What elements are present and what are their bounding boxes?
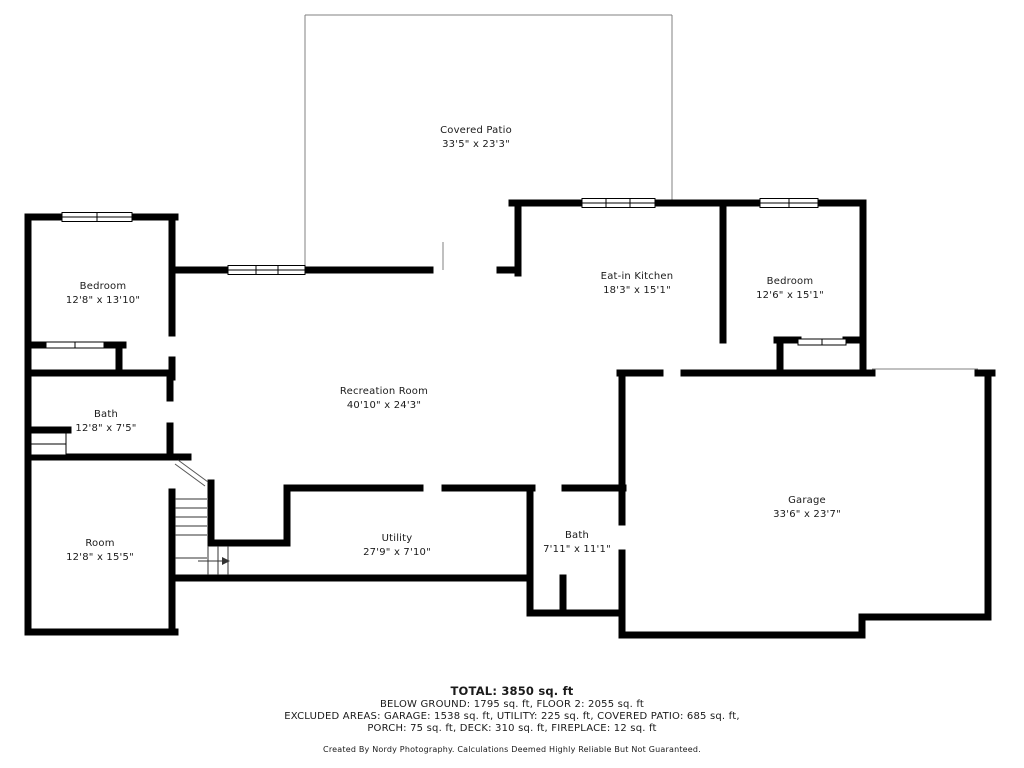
door-leaf-line	[178, 460, 208, 482]
window-bedroom-right	[760, 199, 818, 208]
room-dims: 27'9" x 7'10"	[363, 547, 431, 558]
utility-stair-walls	[172, 483, 623, 578]
room-name: Garage	[788, 495, 826, 506]
floorplan-drawing: Covered Patio 33'5" x 23'3" Bedroom 12'8…	[0, 0, 1024, 768]
summary-line3: EXCLUDED AREAS: GARAGE: 1538 sq. ft, UTI…	[284, 711, 739, 722]
room-dims: 12'6" x 15'1"	[756, 290, 824, 301]
room-label-bedroom-left: Bedroom 12'8" x 13'10"	[66, 281, 140, 306]
stairs	[175, 499, 230, 575]
window-kitchen	[582, 199, 655, 208]
room-label-bath-left: Bath 12'8" x 7'5"	[75, 409, 136, 434]
room-name: Utility	[382, 533, 413, 544]
room-label-room: Room 12'8" x 15'5"	[66, 538, 134, 563]
summary-line4: PORCH: 75 sq. ft, DECK: 310 sq. ft, FIRE…	[367, 723, 656, 734]
room-name: Eat-in Kitchen	[601, 271, 674, 282]
room-label-bath-center: Bath 7'11" x 11'1"	[543, 530, 611, 555]
room-name: Covered Patio	[440, 125, 512, 136]
room-label-covered-patio: Covered Patio 33'5" x 23'3"	[440, 125, 512, 150]
room-dims: 12'8" x 15'5"	[66, 552, 134, 563]
room-name: Bedroom	[80, 281, 127, 292]
room-dims: 12'8" x 13'10"	[66, 295, 140, 306]
room-labels: Covered Patio 33'5" x 23'3" Bedroom 12'8…	[66, 125, 841, 563]
window-bedroom-left	[62, 213, 132, 222]
stair-arrow-head	[222, 557, 230, 565]
closet-door-bedroom-left	[46, 342, 104, 348]
summary-line2: BELOW GROUND: 1795 sq. ft, FLOOR 2: 2055…	[380, 699, 644, 710]
room-name: Bath	[565, 530, 589, 541]
room-label-utility: Utility 27'9" x 7'10"	[363, 533, 431, 558]
room-label-garage: Garage 33'6" x 23'7"	[773, 495, 841, 520]
closet-door-bedroom-right	[798, 339, 846, 345]
room-label-bedroom-right: Bedroom 12'6" x 15'1"	[756, 276, 824, 301]
room-dims: 33'6" x 23'7"	[773, 509, 841, 520]
summary-block: TOTAL: 3850 sq. ft BELOW GROUND: 1795 sq…	[284, 684, 739, 754]
recroom-north-walls	[172, 203, 518, 273]
room-name: Bath	[94, 409, 118, 420]
window-recreation	[228, 266, 305, 275]
room-name: Room	[85, 538, 114, 549]
closets	[31, 339, 846, 455]
kitchen-bedroom-walls	[512, 203, 863, 373]
room-name: Bedroom	[767, 276, 814, 287]
door-leaf-line	[175, 464, 205, 486]
room-label-recreation: Recreation Room 40'10" x 24'3"	[340, 386, 428, 411]
room-dims: 40'10" x 24'3"	[347, 400, 421, 411]
credit-line: Created By Nordy Photography. Calculatio…	[323, 745, 701, 754]
linen-closet-bath	[31, 433, 66, 455]
room-dims: 12'8" x 7'5"	[75, 423, 136, 434]
room-label-eat-in-kitchen: Eat-in Kitchen 18'3" x 15'1"	[601, 271, 674, 296]
room-name: Recreation Room	[340, 386, 428, 397]
room-dims: 33'5" x 23'3"	[442, 139, 510, 150]
walls	[28, 203, 992, 635]
door-swing	[175, 460, 208, 486]
room-dims: 18'3" x 15'1"	[603, 285, 671, 296]
floorplan-page: Covered Patio 33'5" x 23'3" Bedroom 12'8…	[0, 0, 1024, 768]
summary-total: TOTAL: 3850 sq. ft	[451, 684, 574, 698]
room-dims: 7'11" x 11'1"	[543, 544, 611, 555]
